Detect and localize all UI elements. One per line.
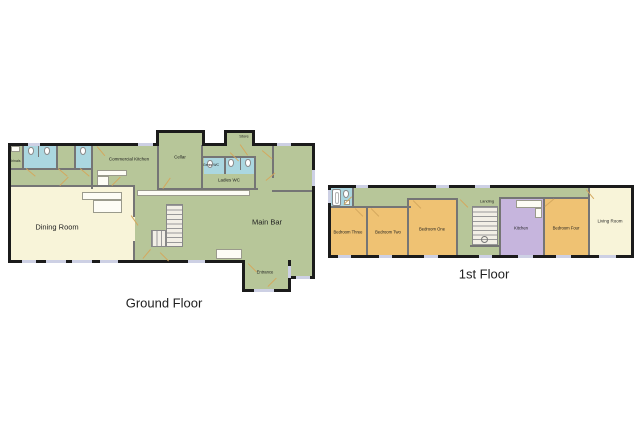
stairs-icon	[166, 204, 183, 247]
stair-direction-icon	[481, 236, 488, 243]
toilet-icon	[228, 159, 234, 167]
toilet-icon	[80, 147, 86, 155]
window	[479, 255, 492, 258]
toilet-icon	[44, 147, 50, 155]
window	[100, 260, 118, 263]
room-label-bedroom-one: Bedroom One	[419, 227, 445, 232]
room-label-living-room: Living Room	[597, 219, 622, 224]
toilet-icon	[28, 147, 34, 155]
wall	[157, 188, 258, 190]
wall	[409, 198, 458, 200]
window	[254, 289, 274, 292]
room-label-entrance: Entrance	[257, 270, 274, 275]
wall	[631, 185, 634, 258]
window	[475, 185, 490, 188]
window	[556, 255, 571, 258]
wall	[202, 156, 256, 158]
window	[518, 255, 533, 258]
window	[436, 185, 449, 188]
wall	[224, 158, 226, 174]
wall	[312, 143, 315, 279]
room-label-ladies-wc: Ladies WC	[218, 178, 240, 183]
room-label-urinals: Urinals	[10, 159, 21, 163]
window	[328, 190, 331, 203]
bathtub-icon	[332, 189, 341, 206]
window	[424, 255, 438, 258]
wall	[240, 158, 241, 170]
window	[356, 185, 368, 188]
window	[288, 266, 291, 278]
room-label-cellar: Cellar	[174, 155, 186, 160]
room-label-bedroom-four: Bedroom Four	[553, 226, 580, 231]
stairs-icon	[151, 230, 166, 247]
window	[338, 255, 351, 258]
wall	[456, 198, 458, 255]
window	[46, 260, 66, 263]
room-label-bedroom-two: Bedroom Two	[375, 230, 401, 235]
window	[138, 143, 153, 146]
bar-counter	[82, 192, 122, 200]
wall	[38, 146, 39, 157]
window	[277, 143, 291, 146]
wall	[499, 197, 501, 255]
room-se-step	[288, 255, 314, 278]
room-label-bedroom-three: Bedroom Three	[333, 230, 362, 235]
room-label-gents-wc: Gents WC	[203, 163, 219, 167]
room-label-main-bar: Main Bar	[252, 218, 282, 227]
wall	[8, 185, 135, 187]
window	[22, 260, 36, 263]
room-label-kitchen: Kitchen	[514, 226, 528, 231]
window	[28, 143, 40, 146]
wall	[254, 156, 256, 190]
floorplan-canvas: Urinals Commercial Kitchen Cellar Gents …	[0, 0, 640, 426]
wall	[201, 145, 203, 190]
window	[296, 276, 310, 279]
room-label-landing: Landing	[480, 199, 494, 204]
wall	[156, 130, 205, 133]
wall	[133, 187, 135, 217]
window	[379, 255, 392, 258]
kitchen-counter	[516, 200, 542, 208]
wall	[366, 208, 368, 255]
wall	[74, 144, 76, 168]
floor-title-first: 1st Floor	[459, 267, 510, 282]
wall	[352, 188, 354, 207]
toilet-icon	[343, 190, 349, 198]
window	[312, 170, 315, 186]
floor-title-ground: Ground Floor	[126, 296, 203, 311]
urinal-icon	[11, 146, 20, 152]
wall	[8, 260, 245, 263]
kitchen-appliance	[535, 208, 542, 218]
wall	[470, 245, 500, 247]
window	[72, 260, 92, 263]
wall	[22, 144, 24, 170]
bar-counter	[137, 190, 250, 196]
wall	[407, 198, 409, 255]
wall	[56, 144, 58, 168]
wall	[588, 188, 590, 255]
wall	[242, 260, 245, 292]
window	[188, 260, 205, 263]
room-label-commercial-kitchen: Commercial Kitchen	[109, 157, 149, 162]
wall	[133, 241, 135, 262]
wall	[157, 145, 159, 190]
wall	[272, 190, 315, 192]
room-label-store: Store	[239, 134, 249, 139]
room-label-dining-room: Dining Room	[35, 223, 78, 232]
bar-counter	[93, 200, 122, 213]
room-cellar	[157, 131, 203, 190]
toilet-icon	[245, 159, 251, 167]
hearth	[216, 249, 242, 259]
window	[599, 255, 616, 258]
wall	[91, 144, 93, 189]
